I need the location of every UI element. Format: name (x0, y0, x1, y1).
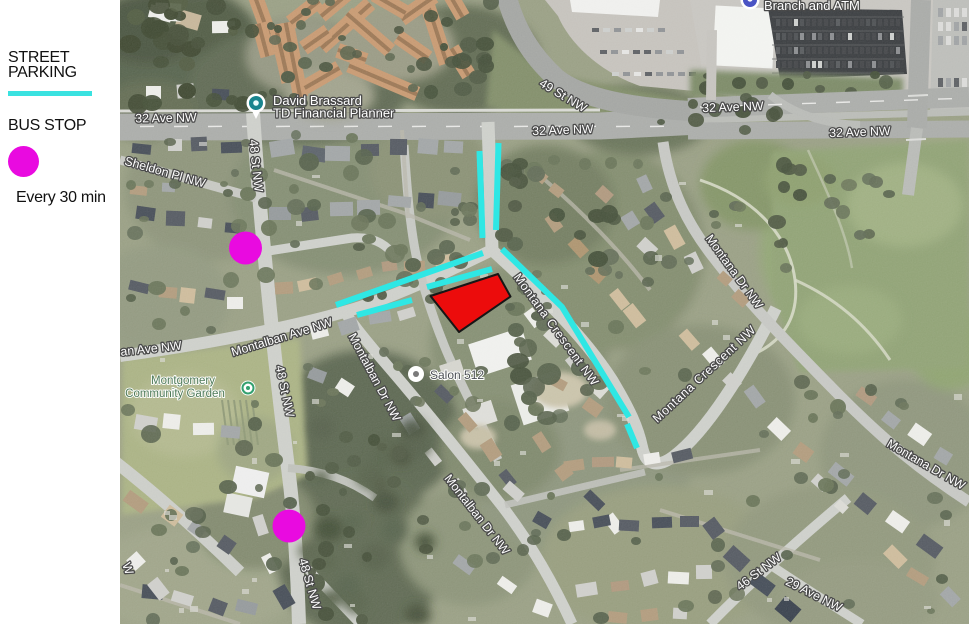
svg-text:Community Garden: Community Garden (125, 388, 225, 400)
svg-text:32 Ave NW: 32 Ave NW (532, 122, 594, 138)
svg-text:32 Ave NW: 32 Ave NW (702, 99, 764, 115)
svg-text:Montgomery: Montgomery (151, 375, 215, 387)
svg-text:TD Financial Planner: TD Financial Planner (273, 106, 395, 121)
svg-text:32 Ave NW: 32 Ave NW (829, 124, 891, 140)
svg-text:Salon 512: Salon 512 (430, 368, 484, 382)
svg-text:32 Ave NW: 32 Ave NW (135, 110, 197, 125)
svg-text:Branch and ATM: Branch and ATM (764, 0, 860, 13)
